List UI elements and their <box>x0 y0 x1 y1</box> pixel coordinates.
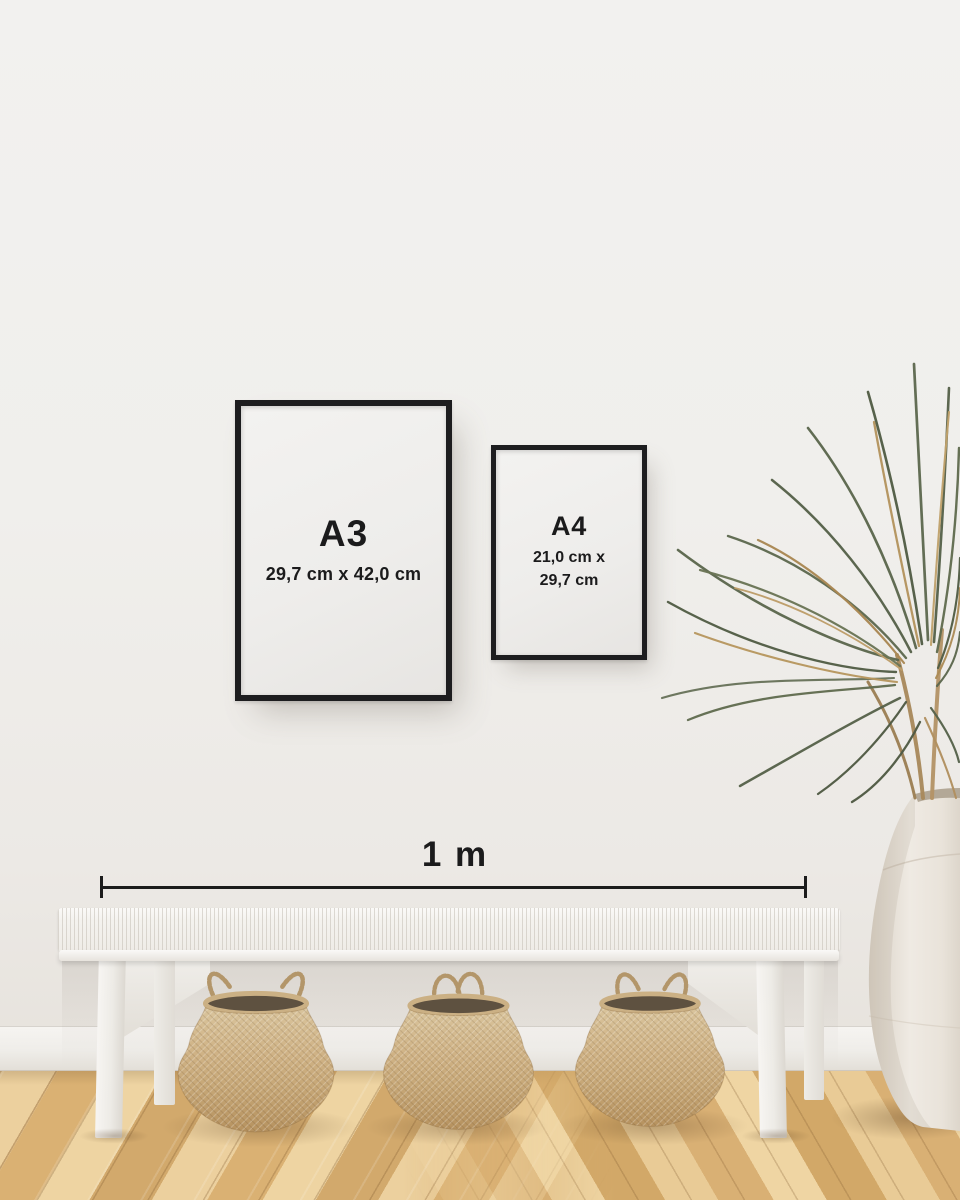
poster-a4-dimensions: 21,0 cm x 29,7 cm <box>533 547 605 592</box>
belly-basket-1 <box>160 958 352 1145</box>
bench-leg-front-left <box>95 950 126 1138</box>
bench-leg-shadow-left <box>78 1128 150 1144</box>
poster-frame-a3: A3 29,7 cm x 42,0 cm <box>235 400 452 701</box>
palm-plant <box>640 330 960 810</box>
basket-weave-texture <box>575 1007 724 1126</box>
floor-vase <box>853 786 960 1132</box>
poster-paper-a3: A3 29,7 cm x 42,0 cm <box>241 406 446 695</box>
bench-seat <box>58 908 840 952</box>
poster-frame-a4: A4 21,0 cm x 29,7 cm <box>491 445 647 660</box>
belly-basket-3 <box>558 960 742 1139</box>
poster-paper-a4: A4 21,0 cm x 29,7 cm <box>496 450 642 655</box>
room-scene: A3 29,7 cm x 42,0 cm A4 21,0 cm x 29,7 c… <box>0 0 960 1200</box>
bench-leg-shadow-right <box>740 1128 812 1144</box>
belly-basket-2 <box>366 962 551 1142</box>
bench-leg-front-right <box>756 950 787 1138</box>
poster-a4-label: A4 <box>551 513 587 540</box>
basket-weave-texture <box>178 1008 334 1132</box>
poster-a3-dimensions: 29,7 cm x 42,0 cm <box>266 563 422 586</box>
bench-leg-back-right <box>804 950 824 1100</box>
poster-a4-dimensions-line2: 29,7 cm <box>533 570 605 592</box>
poster-a3-label: A3 <box>319 515 368 552</box>
poster-a4-dimensions-line1: 21,0 cm x <box>533 547 605 569</box>
basket-weave-texture <box>384 1010 534 1130</box>
